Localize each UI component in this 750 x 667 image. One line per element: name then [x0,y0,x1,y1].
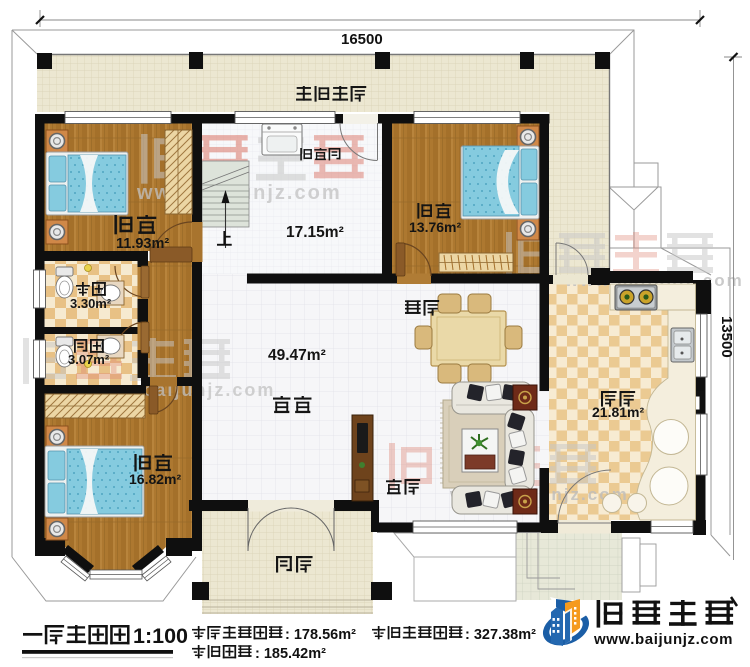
svg-text:www.baijunjz.com: www.baijunjz.com [593,631,733,648]
svg-text:3.30m²: 3.30m² [70,296,112,311]
svg-text:16.82m²: 16.82m² [129,471,181,487]
svg-text:3.07m²: 3.07m² [68,352,110,367]
svg-text:: 185.42m²: : 185.42m² [255,646,326,662]
svg-text:11.93m²: 11.93m² [116,236,169,252]
svg-text:13500: 13500 [718,316,735,358]
svg-text:13.76m²: 13.76m² [409,219,461,235]
svg-text:17.15m²: 17.15m² [286,224,344,241]
svg-text:16500: 16500 [341,31,383,48]
svg-text:1:100: 1:100 [133,624,188,648]
svg-text:49.47m²: 49.47m² [268,347,326,364]
svg-text:: 327.38m²: : 327.38m² [465,627,536,643]
svg-text:21.81m²: 21.81m² [592,404,644,420]
svg-text:: 178.56m²: : 178.56m² [285,627,356,643]
